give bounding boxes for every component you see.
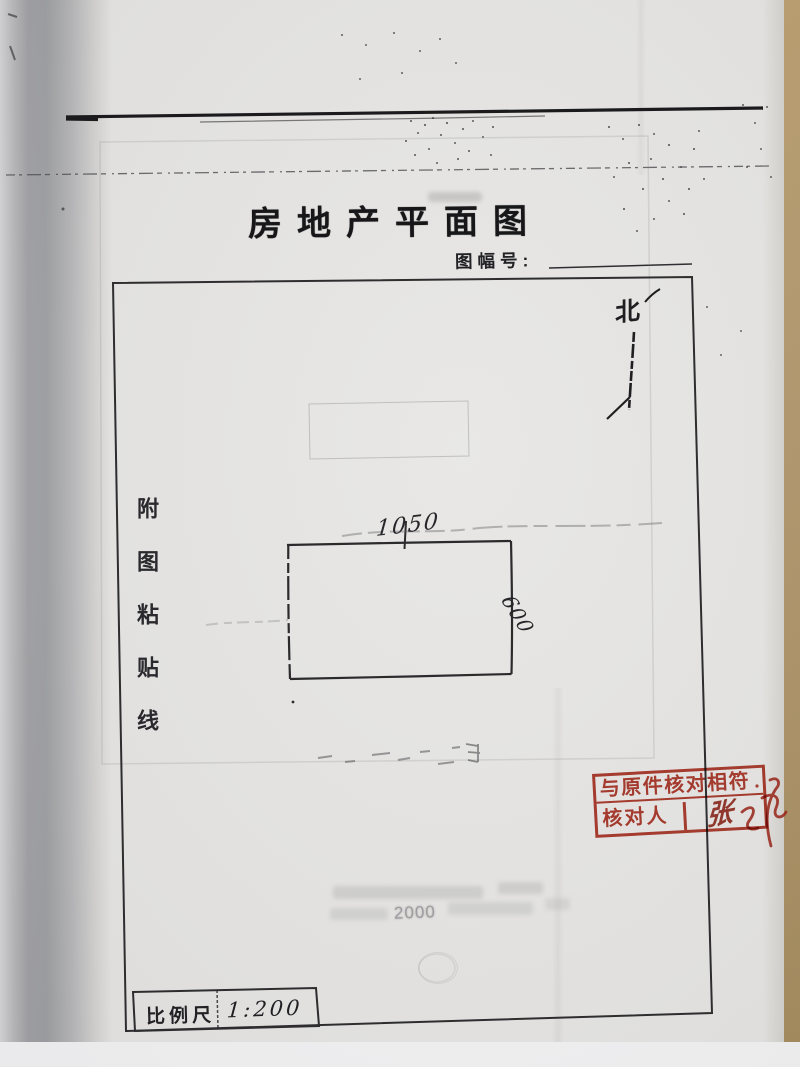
sheet-no-underline (549, 264, 692, 268)
parcel-rectangle (287, 521, 512, 703)
scanned-document-photo: 房地产平面图 图幅号: 附图粘贴线 北 1050 600 比例尺 1:200 2… (0, 0, 800, 1067)
dashed-rule (6, 166, 770, 175)
scale-label: 比例尺 (146, 1000, 216, 1029)
ghost-rectangle (309, 401, 469, 459)
document-title: 房地产平面图 (248, 193, 542, 245)
faded-print-year: 2000 (394, 902, 437, 923)
faint-ring (419, 954, 455, 982)
scale-value: 1:200 (226, 996, 303, 1023)
verification-stamp: 与原件核对相符 核对人 (592, 765, 768, 838)
verifier-signature: 张 (706, 789, 733, 833)
paste-line-label: 附图粘贴线 (130, 497, 162, 762)
sheet-number-label: 图幅号: (455, 247, 534, 273)
scan-smudges (8, 14, 662, 764)
top-rule (66, 108, 763, 122)
north-label: 北 (615, 290, 640, 329)
